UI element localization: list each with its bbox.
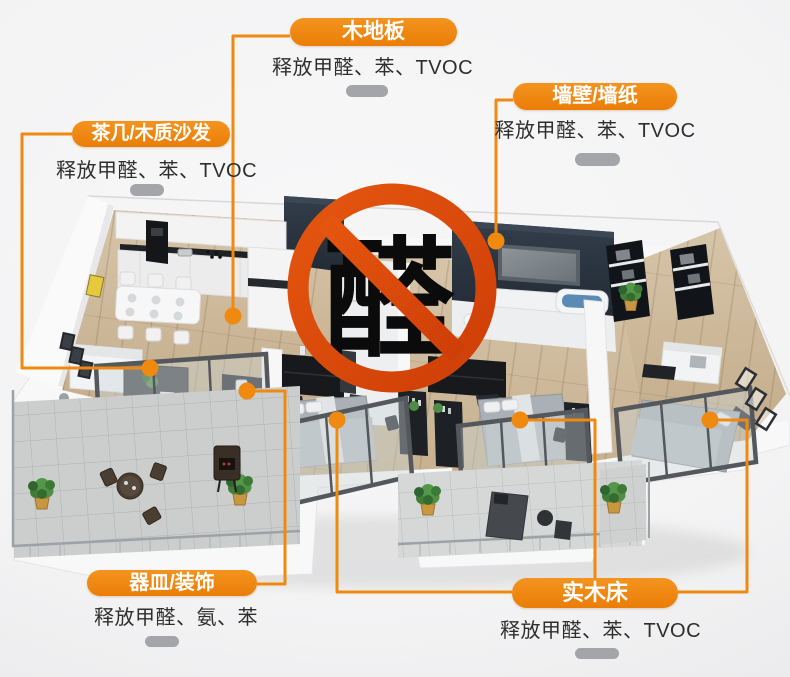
small-balcony [600,462,649,545]
callout-coffee-table-sofa: 茶几/木质沙发 释放甲醛、苯、TVOC [72,121,230,147]
callout-pill-wood-floor: 木地板 [290,18,457,46]
dot-coffee-table-sofa [142,360,159,377]
callout-description-solid-wood-bed: 释放甲醛、苯、TVOC [500,614,690,643]
dining-set [115,272,201,344]
callout-pill-utensils-decor: 器皿/装饰 [87,570,257,596]
poster-canvas: 醛 木地板 释放甲醛、苯、TVOC 墙壁/墙纸 释放甲醛、苯、TVOC 茶几/木… [0,0,790,677]
callout-wood-floor: 木地板 释放甲醛、苯、TVOC [290,18,457,46]
callout-solid-wood-bed: 实木床 释放甲醛、苯、TVOC [512,578,678,608]
oven-tower [146,220,168,264]
dot-wall-wallpaper [488,233,505,250]
callout-pill-solid-wood-bed: 实木床 [512,578,678,608]
callout-description-coffee-table-sofa: 释放甲醛、苯、TVOC [56,154,246,183]
callout-pill-wall-wallpaper: 墙壁/墙纸 [513,83,677,110]
terrace-balcony [13,386,300,558]
callout-pill-coffee-table-sofa: 茶几/木质沙发 [72,121,230,147]
callout-description-utensils-decor: 释放甲醛、氨、苯 [94,601,250,630]
dot-bed-2 [512,412,529,429]
divider-pill [346,85,388,97]
callout-wall-wallpaper: 墙壁/墙纸 释放甲醛、苯、TVOC [513,83,677,110]
callout-description-wall-wallpaper: 释放甲醛、苯、TVOC [491,114,699,143]
divider-pill [575,153,620,166]
dot-wood-floor [225,308,242,325]
divider-pill [575,648,619,659]
dot-utensils-decor [239,383,256,400]
divider-pill [130,184,164,196]
lounge-chair [486,492,528,540]
callout-utensils-decor: 器皿/装饰 释放甲醛、氨、苯 [87,570,257,596]
divider-pill [145,636,179,647]
callout-description-wood-floor: 释放甲醛、苯、TVOC [272,51,442,80]
dot-bed-1 [329,412,346,429]
dot-bed-3 [702,412,719,429]
sink [178,249,192,256]
